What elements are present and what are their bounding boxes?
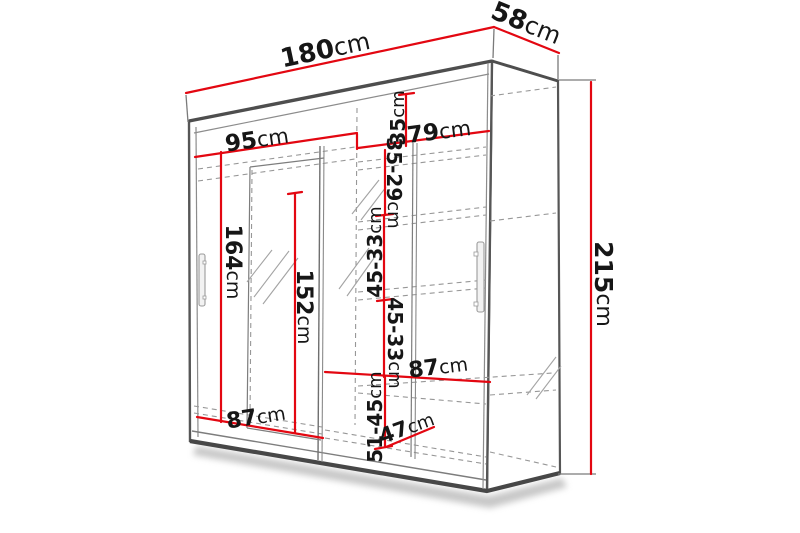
side-panel (487, 61, 560, 491)
tick-line (493, 29, 494, 58)
dim-top-depth-label: 58cm (487, 0, 566, 51)
wardrobe-dimension-diagram: 180cm 58cm 215cm 95cm 79cm 35cm 35-29cm … (0, 0, 800, 533)
dim-mirror-height-label: 152cm (292, 270, 317, 345)
dim-shelf-gap-mid-label: 45-33cm (363, 206, 387, 297)
dim-bottom-gap-label: 51-45cm (363, 371, 387, 462)
dim-total-height-label: 215cm (590, 241, 619, 327)
diagram-canvas: 180cm 58cm 215cm 95cm 79cm 35cm 35-29cm … (0, 0, 800, 533)
handle-screw (474, 302, 478, 306)
handle-screw (474, 252, 478, 256)
dim-total-width-label: 180cm (278, 26, 373, 74)
dim-shelf-gap-top-label: 35-29cm (382, 137, 406, 228)
handle-screw (203, 296, 206, 299)
dim-hanging-height-label: 164cm (221, 225, 246, 300)
tick-line (186, 95, 188, 122)
handle-screw (203, 261, 206, 264)
dim-shelf-gap-lower-label: 45-33cm (383, 297, 407, 388)
